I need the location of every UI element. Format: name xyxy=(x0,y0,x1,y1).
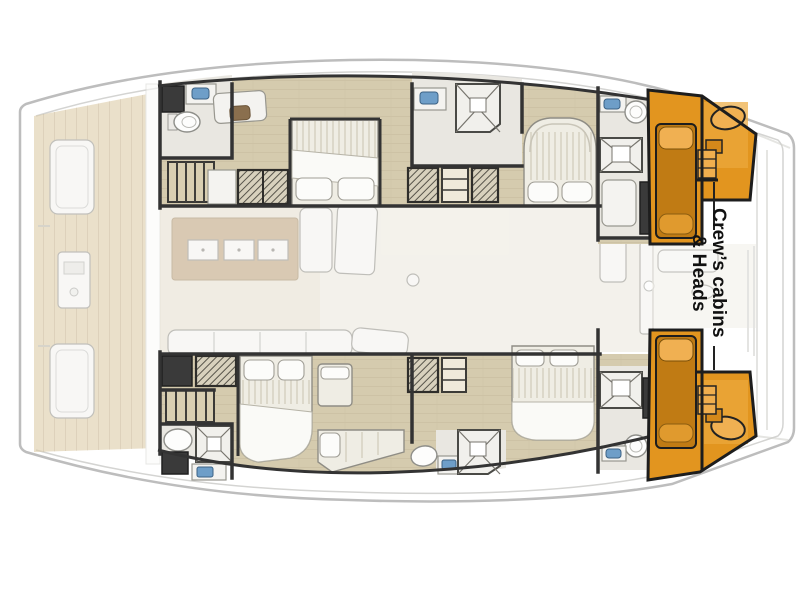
bed-duvet xyxy=(512,402,594,440)
duvet-roll xyxy=(528,182,558,202)
crew-duvet-roll xyxy=(659,424,693,442)
locker xyxy=(162,356,192,386)
bow-deck xyxy=(34,84,160,464)
pillow-2 xyxy=(278,360,304,380)
shower-icon xyxy=(162,86,184,112)
port-wardrobe-slatted xyxy=(168,162,214,202)
anchor-windlass xyxy=(58,252,90,308)
wardrobe-hatched xyxy=(196,356,236,386)
bed-duvet xyxy=(240,404,312,462)
bed-stripes xyxy=(513,368,593,398)
forward-bulkhead xyxy=(146,84,160,464)
bow-locker-starboard xyxy=(50,344,94,418)
shower-tray xyxy=(612,146,630,162)
crew-pillow xyxy=(659,127,693,149)
floor-plan-canvas: Crew’s cabins & Heads xyxy=(0,0,800,600)
mirror-screen xyxy=(197,467,213,477)
bed-stripes xyxy=(526,132,594,180)
sink-icon xyxy=(604,99,620,109)
pillow xyxy=(244,360,274,380)
duvet-roll-2 xyxy=(562,182,592,202)
shower-tray xyxy=(470,442,486,456)
sink-icon xyxy=(606,449,621,458)
pillow-4 xyxy=(320,433,340,457)
crew-label-line1: Crew’s cabins xyxy=(708,208,729,338)
salon xyxy=(160,205,654,357)
sink-basin-icon xyxy=(164,429,192,451)
starboard-aft-cabin xyxy=(512,346,594,440)
shower-tray xyxy=(612,380,630,396)
anchor-fitting xyxy=(64,262,84,274)
floor-plan-page: Crew’s cabins & Heads xyxy=(0,0,800,600)
shelf-unit xyxy=(442,168,468,202)
shelf-unit xyxy=(442,358,466,392)
crew-duvet-roll xyxy=(659,214,693,234)
pillow-3 xyxy=(321,367,349,379)
windlass-drum-icon xyxy=(70,288,78,296)
knob-icon xyxy=(201,248,204,251)
pillow xyxy=(296,178,332,200)
sink-icon xyxy=(192,88,209,99)
sink-icon xyxy=(420,92,438,104)
wardrobe-hatched-2 xyxy=(472,168,498,202)
cabinet xyxy=(208,170,236,204)
shower-tray xyxy=(207,437,221,451)
bow-locker-port xyxy=(50,140,94,214)
shower-tray xyxy=(470,98,486,112)
bed-stripes xyxy=(241,380,311,404)
pillow-2 xyxy=(338,178,374,200)
salon-settee-b xyxy=(334,205,378,275)
galley-worktops xyxy=(188,240,288,260)
knob-icon-2 xyxy=(237,248,240,251)
salon-settee-a xyxy=(300,208,332,272)
wardrobe-hatched xyxy=(408,168,438,202)
crew-label-line2: & Heads xyxy=(688,234,709,311)
crew-pillow xyxy=(659,339,693,361)
toilet-icon xyxy=(625,101,647,123)
knob-icon-3 xyxy=(271,248,274,251)
salon-table-base xyxy=(407,274,419,286)
vanity xyxy=(602,180,636,226)
